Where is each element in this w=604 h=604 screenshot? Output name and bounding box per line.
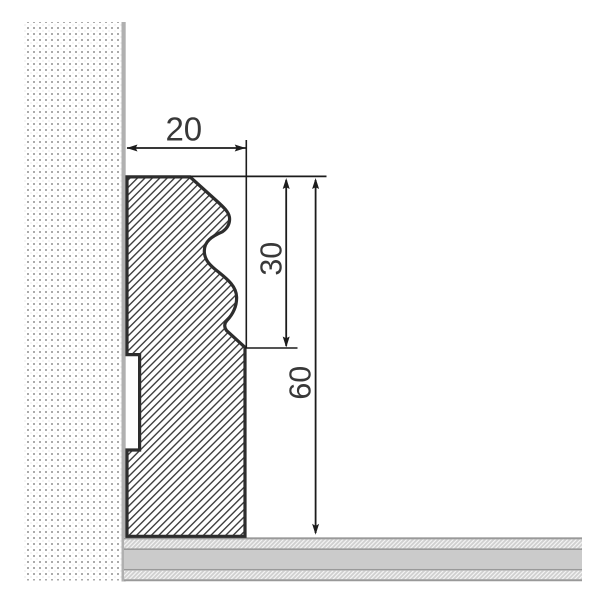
svg-text:30: 30: [254, 242, 288, 276]
svg-text:20: 20: [165, 110, 202, 147]
svg-text:60: 60: [283, 366, 317, 400]
